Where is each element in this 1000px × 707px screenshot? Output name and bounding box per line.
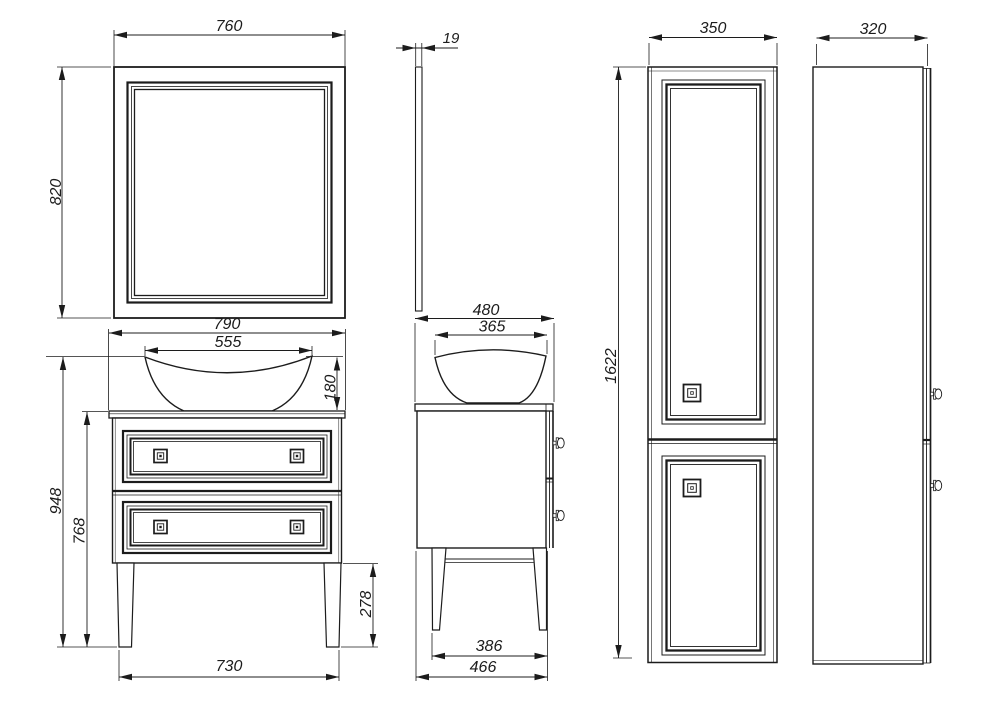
leg-side-back [533,548,547,630]
dim-mirror-width: 760 [114,18,345,66]
vessel-basin-front [145,356,312,411]
dim-label-basin-height: 180 [323,375,340,402]
door-handle [684,480,701,497]
mirror-side-panel [416,67,423,311]
cabinet-body-side [417,411,546,548]
countertop-side [415,404,553,411]
leg-front-left [117,563,134,647]
washstand-side-view [415,350,564,630]
tall-cabinet-front-view [648,67,777,663]
dim-label-column-depth: 320 [860,21,887,38]
dim-label-column-width: 350 [700,20,727,37]
dim-label-base-depth: 466 [470,659,497,676]
knob-side [931,389,942,399]
dim-leg-span: 730 [119,650,339,681]
dim-label-mirror-height: 820 [48,179,65,206]
leg-side-front [432,548,446,630]
drawing-sheet: 760 820 790 555 180 [0,0,1000,707]
dim-label-cabinet-height: 768 [72,518,89,545]
column-body-side [813,67,923,664]
dim-label-countertop-depth: 480 [473,302,500,319]
dim-label-basin-depth: 365 [479,319,506,336]
dim-label-total-height: 948 [48,488,65,515]
drawer-handle [154,450,167,463]
dim-floor-clearance: 278 [341,564,378,648]
dim-mirror-height: 820 [48,67,111,318]
drawer-handle [154,521,167,534]
vessel-basin-side [435,350,546,403]
washstand-front-view [109,356,345,647]
mirror-outer-frame [114,67,345,318]
drawer-handle [291,521,304,534]
drawer-handle [291,450,304,463]
dim-label-side-leg-span: 386 [476,638,503,655]
dim-basin-height: 180 [306,357,343,411]
door-handle [684,385,701,402]
mirror-side-view [416,67,423,311]
knob-side [931,480,942,490]
dim-label-column-height: 1622 [603,348,620,384]
countertop-front [109,411,345,418]
knob-side [553,438,564,448]
dim-cabinet-height: 768 [72,412,109,648]
mirror-front-view [114,67,345,318]
dim-basin-width: 555 [145,334,312,356]
leg-front-right [324,563,341,647]
dim-label-basin-width: 555 [215,334,242,351]
technical-drawing-canvas: 760 820 790 555 180 [0,0,1000,707]
dim-label-floor-clearance: 278 [358,591,375,619]
knob-side [553,510,564,520]
dim-column-width: 350 [649,20,777,65]
dim-mirror-thickness: 19 [396,30,460,66]
dim-label-mirror-thickness: 19 [443,30,460,47]
dim-column-height: 1622 [603,67,646,658]
dim-label-leg-span: 730 [216,658,243,675]
tall-cabinet-side-view [813,67,942,664]
dim-column-depth: 320 [817,21,928,66]
dim-label-mirror-width: 760 [216,18,243,35]
